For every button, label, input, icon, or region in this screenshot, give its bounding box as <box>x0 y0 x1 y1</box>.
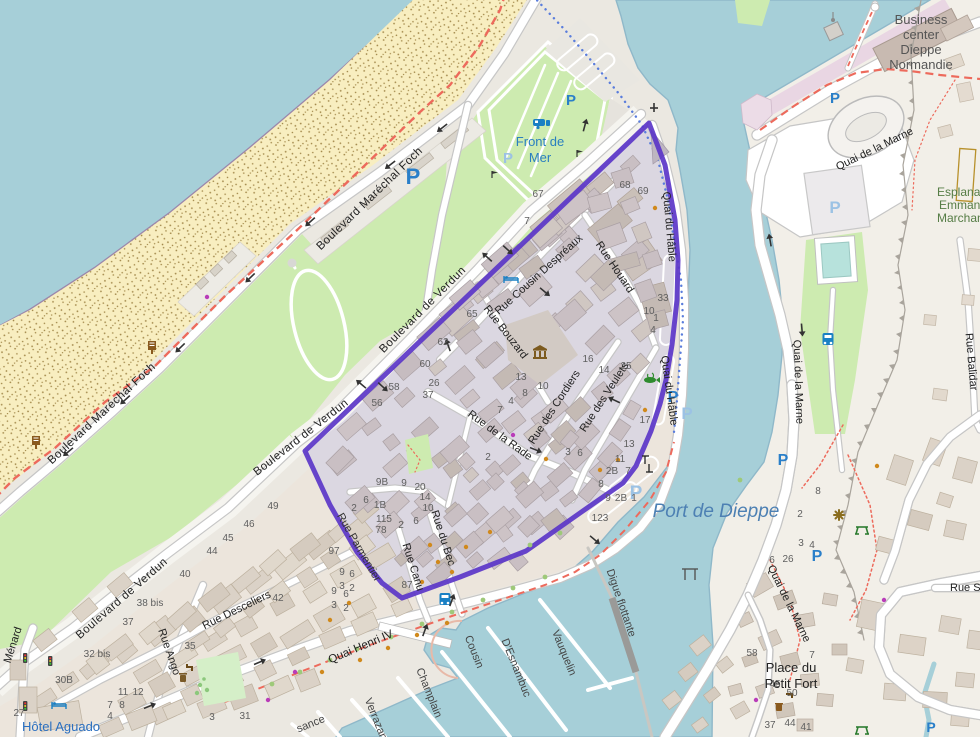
svg-text:2: 2 <box>343 603 349 614</box>
svg-text:123: 123 <box>592 513 609 524</box>
svg-text:12: 12 <box>132 687 144 698</box>
svg-text:4: 4 <box>107 711 113 722</box>
svg-text:37: 37 <box>122 617 134 628</box>
svg-text:8: 8 <box>522 388 528 399</box>
svg-text:7: 7 <box>524 216 530 227</box>
svg-text:9: 9 <box>605 493 611 504</box>
svg-text:11: 11 <box>615 454 626 465</box>
svg-text:2B: 2B <box>606 466 619 477</box>
svg-text:2: 2 <box>797 509 803 520</box>
svg-text:6: 6 <box>413 516 419 527</box>
svg-text:37: 37 <box>422 390 434 401</box>
svg-text:1: 1 <box>653 313 659 324</box>
svg-text:7: 7 <box>497 405 503 416</box>
svg-text:P: P <box>829 198 840 217</box>
svg-text:Rue Sa: Rue Sa <box>950 582 980 594</box>
svg-text:P: P <box>503 150 513 167</box>
svg-text:42: 42 <box>272 593 284 604</box>
svg-text:65: 65 <box>466 309 478 320</box>
svg-text:7: 7 <box>107 700 113 711</box>
svg-text:3: 3 <box>565 447 571 458</box>
svg-text:14: 14 <box>419 492 431 503</box>
svg-text:P: P <box>566 92 576 109</box>
svg-text:44: 44 <box>206 546 218 557</box>
svg-text:68: 68 <box>619 180 631 191</box>
svg-text:P: P <box>681 404 692 423</box>
svg-text:9: 9 <box>401 478 407 489</box>
svg-text:78: 78 <box>375 525 387 536</box>
svg-text:58: 58 <box>746 648 758 659</box>
svg-text:46: 46 <box>243 519 255 530</box>
svg-text:2: 2 <box>485 452 491 463</box>
svg-text:27: 27 <box>13 708 25 719</box>
svg-text:6: 6 <box>343 589 349 600</box>
svg-text:38 bis: 38 bis <box>137 598 164 609</box>
svg-text:26: 26 <box>428 378 440 389</box>
svg-text:Dieppe: Dieppe <box>900 42 941 57</box>
svg-text:Normandie: Normandie <box>889 57 953 72</box>
svg-text:17: 17 <box>639 415 651 426</box>
svg-text:1: 1 <box>631 493 637 504</box>
svg-text:35: 35 <box>184 641 196 652</box>
svg-text:1B: 1B <box>374 500 387 511</box>
svg-text:13: 13 <box>623 439 635 450</box>
svg-text:67: 67 <box>532 189 544 200</box>
svg-text:Hôtel Aguado: Hôtel Aguado <box>22 719 100 734</box>
svg-text:Marchand: Marchand <box>937 211 980 225</box>
svg-text:37: 37 <box>764 720 776 731</box>
svg-text:2: 2 <box>351 503 357 514</box>
svg-text:45: 45 <box>222 533 234 544</box>
svg-text:8: 8 <box>119 700 125 711</box>
svg-text:P: P <box>926 719 935 735</box>
svg-text:8: 8 <box>815 486 821 497</box>
svg-text:3: 3 <box>331 600 337 611</box>
svg-text:31: 31 <box>239 711 251 722</box>
svg-text:6: 6 <box>363 495 369 506</box>
svg-text:115: 115 <box>376 514 392 525</box>
svg-text:56: 56 <box>371 398 383 409</box>
svg-text:4: 4 <box>508 396 514 407</box>
svg-text:33: 33 <box>657 293 669 304</box>
svg-text:30B: 30B <box>55 675 73 686</box>
svg-text:P: P <box>778 452 789 469</box>
svg-text:center: center <box>903 27 940 42</box>
svg-text:11: 11 <box>118 687 129 698</box>
svg-text:Petit Fort: Petit Fort <box>765 676 818 691</box>
svg-text:97: 97 <box>328 546 340 557</box>
svg-text:3: 3 <box>209 712 215 723</box>
svg-text:9B: 9B <box>376 477 389 488</box>
svg-text:60: 60 <box>419 359 431 370</box>
svg-text:2B: 2B <box>615 493 628 504</box>
svg-text:40: 40 <box>179 569 191 580</box>
svg-text:87: 87 <box>401 580 413 591</box>
svg-text:9: 9 <box>331 586 337 597</box>
svg-text:49: 49 <box>267 501 279 512</box>
svg-text:Business: Business <box>895 12 948 27</box>
svg-text:9: 9 <box>339 567 345 578</box>
svg-text:6: 6 <box>349 569 355 580</box>
svg-text:13: 13 <box>515 372 527 383</box>
svg-text:Emmanue: Emmanue <box>939 198 980 212</box>
svg-text:Place du: Place du <box>766 660 817 675</box>
svg-text:Mer: Mer <box>529 150 552 165</box>
svg-text:3: 3 <box>798 538 804 549</box>
svg-text:7: 7 <box>625 466 631 477</box>
svg-text:69: 69 <box>637 186 649 197</box>
svg-text:44: 44 <box>784 718 796 729</box>
svg-text:4: 4 <box>650 325 656 336</box>
svg-text:2: 2 <box>398 520 404 531</box>
svg-text:6: 6 <box>577 448 583 459</box>
svg-text:26: 26 <box>782 554 794 565</box>
svg-text:41: 41 <box>800 722 812 733</box>
svg-text:32 bis: 32 bis <box>84 649 111 660</box>
svg-text:Esplanade: Esplanade <box>937 185 980 199</box>
svg-text:Port de Dieppe: Port de Dieppe <box>653 501 780 522</box>
svg-text:P: P <box>830 90 840 107</box>
svg-text:4: 4 <box>809 540 815 551</box>
svg-text:62: 62 <box>437 337 449 348</box>
svg-text:14: 14 <box>598 365 610 376</box>
svg-text:16: 16 <box>582 354 594 365</box>
svg-text:8: 8 <box>598 479 604 490</box>
svg-text:Front de: Front de <box>516 134 564 149</box>
svg-text:10: 10 <box>537 381 549 392</box>
svg-text:2: 2 <box>349 583 355 594</box>
svg-text:58: 58 <box>388 382 400 393</box>
